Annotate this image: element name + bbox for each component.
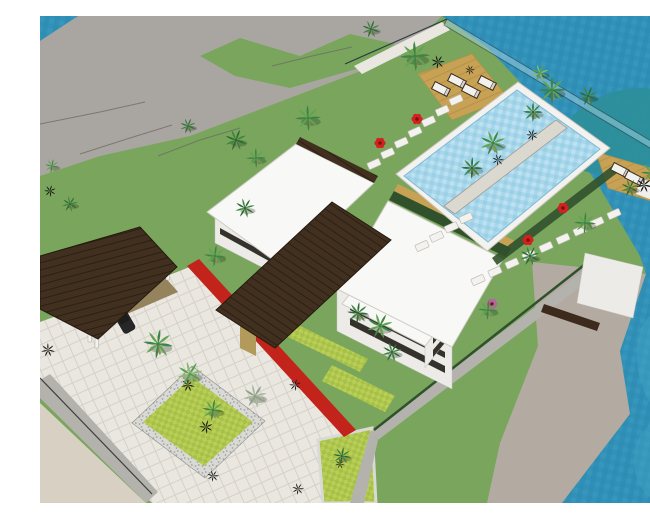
site-render-canvas [40,16,650,503]
architectural-render [40,16,650,503]
palm-tree [538,76,566,104]
